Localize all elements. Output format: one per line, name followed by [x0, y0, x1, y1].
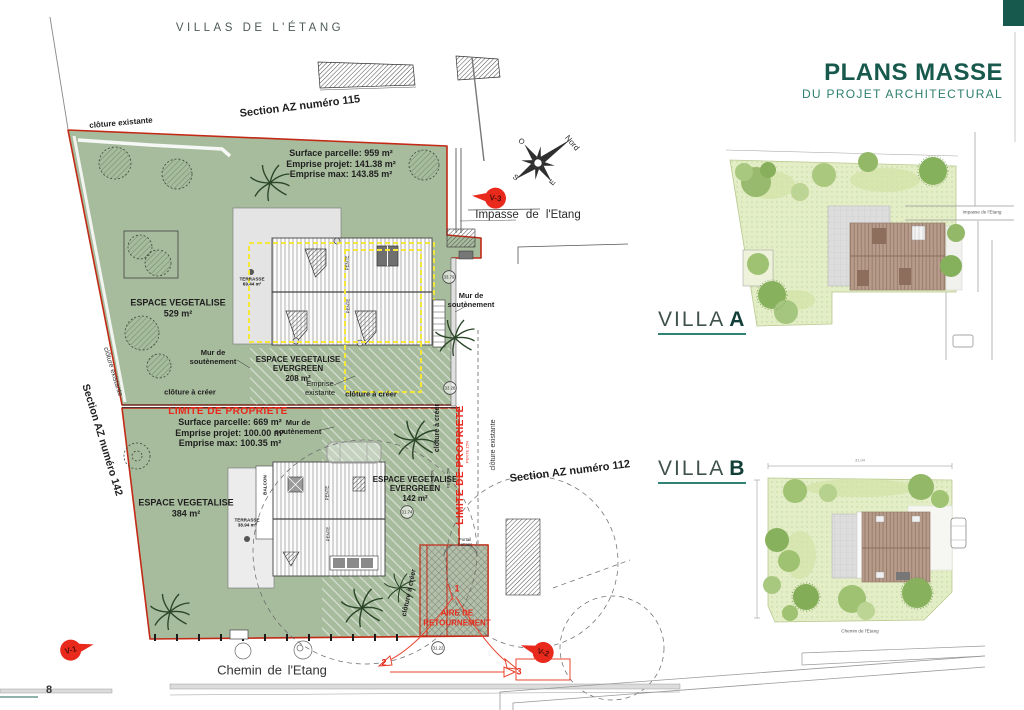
limite-propriete-label-v: LIMITE DE PROPRIETE [455, 405, 467, 525]
espace-a-area: 529 m² [130, 308, 225, 319]
level-3174: 31.74 [402, 509, 413, 514]
aire-retournement-label: AIRE DE RETOURNEMENT [420, 608, 494, 627]
parcel-a-emprise-projet: Emprise projet: 141.38 m² [286, 159, 396, 170]
parcel-a-surface-block: Surface parcelle: 959 m² Emprise projet:… [286, 148, 396, 180]
pente-label-4: PENTE [325, 527, 330, 542]
level-3379: 33.79 [444, 274, 455, 279]
pente15-label: PENTE 15% [466, 441, 471, 463]
espace-vegetalise-a-label: ESPACE VEGETALISE 529 m² [130, 297, 225, 318]
espace-b-text: ESPACE VEGETALISE [138, 497, 233, 508]
espace-a-text: ESPACE VEGETALISE [130, 297, 225, 308]
parcel-a-emprise-max: Emprise max: 143.85 m² [286, 169, 396, 180]
villa-b-word: VILLA [658, 457, 725, 480]
evergreen-b-2: EVERGREEN [373, 484, 458, 493]
site-plan-drawing [0, 0, 1024, 710]
evergreen-b-label: ESPACE VEGETALISE EVERGREEN 142 m² [373, 475, 458, 503]
mur-line2: soutènement [190, 358, 237, 367]
espace-b-area: 384 m² [138, 508, 233, 519]
mur-line2: soutènement [448, 301, 495, 310]
cloture-a-creer-label-3: clôture à créer [434, 404, 442, 452]
impasse-street-label: Impasse de l'Etang [475, 209, 580, 223]
page-number: 8 [46, 684, 52, 696]
pente-label-1: PENTE [344, 256, 349, 271]
cloture-existante-right-label: clôture existante [490, 420, 498, 471]
pente-label-2: PENTE [345, 299, 350, 314]
level-3328: 33.28 [445, 385, 456, 390]
emprise-existante-label: Emprise existante [305, 380, 335, 398]
villa-a-underline [658, 333, 746, 335]
page-number-rule [0, 696, 38, 698]
terrasse-a-area: 69.44 m² [239, 282, 264, 287]
terrasse-b-label: TERRASSE 38.94 m² [234, 518, 259, 529]
espace-vegetalise-b-label: ESPACE VEGETALISE 384 m² [138, 497, 233, 518]
evergreen-a-2: EVERGREEN [256, 364, 341, 373]
terrasse-b-area: 38.94 m² [234, 523, 259, 528]
plans-masse-page: PLANS MASSE DU PROJET ARCHITECTURAL VILL… [0, 0, 1024, 710]
parcel-b-emprise-max: Emprise max: 100.35 m² [175, 438, 285, 449]
villa-b-width-dimension: 31.04 [855, 459, 865, 464]
emprise-exist-2: existante [305, 389, 335, 398]
parcel-b-emprise-projet: Emprise projet: 100.00 m² [175, 428, 285, 439]
portail-2: battant [458, 542, 471, 547]
villa-b-underline [658, 482, 746, 484]
portail-battant-label: Portail battant [458, 537, 471, 547]
route-number-2: 2 [381, 658, 386, 669]
villa-b-plan [754, 463, 985, 665]
villa-a-house [850, 223, 962, 290]
evergreen-a-1: ESPACE VEGETALISE [256, 355, 341, 364]
chemin-street-label: Chemin de l'Etang [217, 662, 327, 677]
cloture-a-creer-label-2: clôture à créer [345, 391, 397, 400]
mur-soutenement-label-1: Mur de soutènement [190, 349, 237, 367]
parcel-b-surface-block: Surface parcelle: 669 m² Emprise projet:… [175, 417, 285, 449]
villa-a-title: VILLAA [658, 308, 746, 332]
marker-tail [519, 640, 538, 655]
parcel-a-surface: Surface parcelle: 959 m² [286, 148, 396, 159]
villa-a-street-label: Impasse de l'Etang [963, 209, 1002, 214]
route-number-1: 1 [454, 584, 459, 595]
project-title: VILLAS DE L'ÉTANG [176, 22, 344, 34]
villa-b-letter: B [729, 457, 746, 480]
pente-label-3: PENTE [324, 486, 329, 501]
terrasse-a-label: TERRASSE 69.44 m² [239, 277, 264, 288]
villa-b-title: VILLAB [658, 457, 746, 481]
car-icon [327, 442, 381, 463]
route-number-3: 3 [516, 667, 521, 678]
balcon-label: BALCON [262, 475, 267, 495]
page-subtitle: DU PROJET ARCHITECTURAL [802, 87, 1003, 101]
villa-a-plan [726, 132, 1014, 360]
villa-a-letter: A [729, 308, 746, 331]
compass-icon [503, 121, 584, 198]
marker-tail [76, 640, 95, 654]
mur-soutenement-label-2: Mur de soutènement [448, 292, 495, 310]
pente5-label-2: PENTE 5% [447, 468, 452, 488]
corner-accent [1003, 0, 1024, 26]
parcel-b-surface: Surface parcelle: 669 m² [175, 417, 285, 428]
villa-b-street-label: Chemin de l'Etang [841, 628, 878, 633]
page-header: PLANS MASSE DU PROJET ARCHITECTURAL [802, 60, 1003, 101]
evergreen-b-area: 142 m² [373, 494, 458, 503]
villa-a-word: VILLA [658, 308, 725, 331]
level-3122: 31.22 [433, 645, 444, 650]
page-title: PLANS MASSE [802, 60, 1003, 85]
pente5-label-1: PENTE 5% [431, 470, 436, 490]
view-marker-v3: V-3 [471, 185, 507, 209]
evergreen-b-1: ESPACE VEGETALISE [373, 475, 458, 484]
cloture-a-creer-label-1: clôture à créer [164, 389, 216, 398]
